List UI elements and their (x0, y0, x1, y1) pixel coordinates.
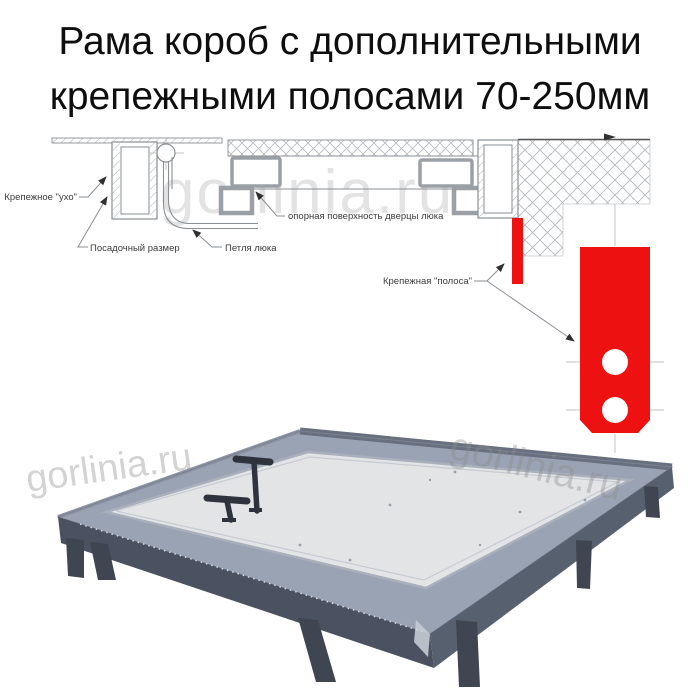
product-photo: gorlinia.ru gorlinia.ru (23, 424, 674, 687)
handle-stem (227, 501, 231, 520)
label-mount-size: Посадочный размер (90, 243, 180, 254)
label-fastening-strip: Крепежная "полоса" (383, 276, 472, 287)
strip-hole-bottom (602, 397, 628, 423)
technical-diagram: gorlinia.ru (4, 134, 664, 454)
label-fastening-ear: Крепежное "ухо" (4, 192, 77, 203)
handle-foot (249, 508, 262, 512)
right-frame-profile (478, 140, 518, 218)
slab-band (228, 140, 473, 156)
leg-strip (644, 486, 660, 518)
product-image: gorlinia.ru (0, 0, 700, 700)
label-support-surface: опорная поверхность дверцы люка (288, 211, 444, 222)
latch-block (454, 188, 480, 213)
strip-hole-top (602, 349, 628, 375)
handle-stem (254, 462, 257, 511)
label-hinge: Петля люка (225, 243, 277, 254)
leg-strip (576, 540, 592, 589)
product-card: Рама короб с дополнительными крепежными … (0, 0, 700, 700)
hinge-block (221, 188, 252, 213)
handle-foot (222, 518, 236, 522)
fastening-strip-section (512, 218, 523, 284)
leg-strip (456, 620, 480, 687)
wall-section (518, 134, 650, 257)
left-frame-profile (112, 142, 157, 219)
leg-strip (66, 538, 84, 578)
fastening-strip-detail (580, 247, 650, 433)
